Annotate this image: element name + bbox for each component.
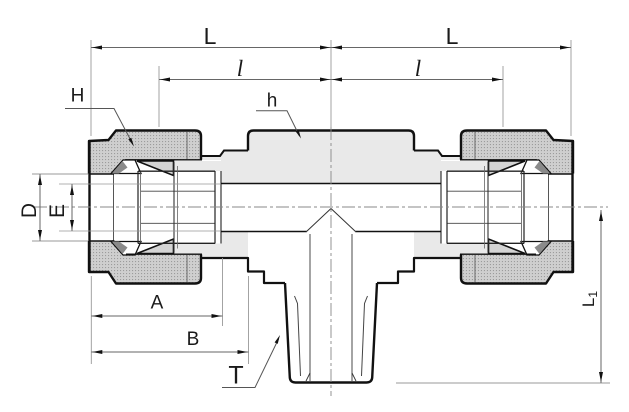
svg-text:l: l bbox=[237, 56, 243, 81]
svg-text:L: L bbox=[204, 23, 217, 49]
svg-text:T: T bbox=[228, 362, 243, 390]
svg-text:l: l bbox=[415, 56, 421, 81]
svg-text:H: H bbox=[71, 86, 85, 107]
svg-text:E: E bbox=[46, 204, 69, 218]
svg-text:L: L bbox=[446, 23, 459, 49]
svg-text:A: A bbox=[151, 293, 164, 314]
svg-text:D: D bbox=[18, 203, 41, 218]
svg-text:h: h bbox=[267, 91, 278, 112]
svg-text:B: B bbox=[187, 329, 200, 350]
